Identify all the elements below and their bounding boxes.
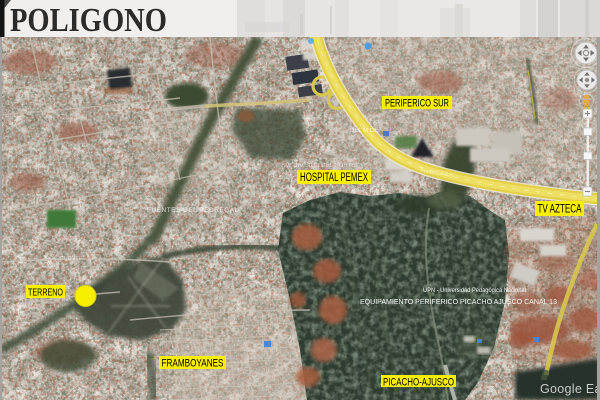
svg-text:EQUIPAMIENTO PERIFERICO PICACH: EQUIPAMIENTO PERIFERICO PICACHO AJUSCO C… [360, 297, 557, 306]
svg-text:DEL M CE: DEL M CE [350, 128, 378, 134]
svg-text:PICACHO-AJUSCO: PICACHO-AJUSCO [383, 377, 454, 389]
svg-text:HOSPITAL PEMEX: HOSPITAL PEMEX [300, 172, 368, 184]
svg-text:TV AZTECA: TV AZTECA [538, 204, 582, 216]
svg-text:FUENTES DEL PEDREGAL: FUENTES DEL PEDREGAL [147, 207, 239, 214]
svg-text:AV DIVISION DEL NORTE: AV DIVISION DEL NORTE [284, 163, 355, 169]
svg-text:POLIGONO: POLIGONO [10, 2, 167, 39]
svg-text:UPN - Universidad Pedagógica: UPN - Universidad Pedagógica Nacional [423, 287, 526, 294]
svg-text:TERRENO: TERRENO [28, 287, 63, 299]
svg-text:Google Eart: Google Eart [540, 382, 600, 396]
svg-text:FRAMBOYANES: FRAMBOYANES [162, 358, 224, 370]
svg-text:PERIFERICO SUR: PERIFERICO SUR [385, 98, 449, 110]
svg-text:PUENTE: PUENTE [60, 256, 83, 262]
